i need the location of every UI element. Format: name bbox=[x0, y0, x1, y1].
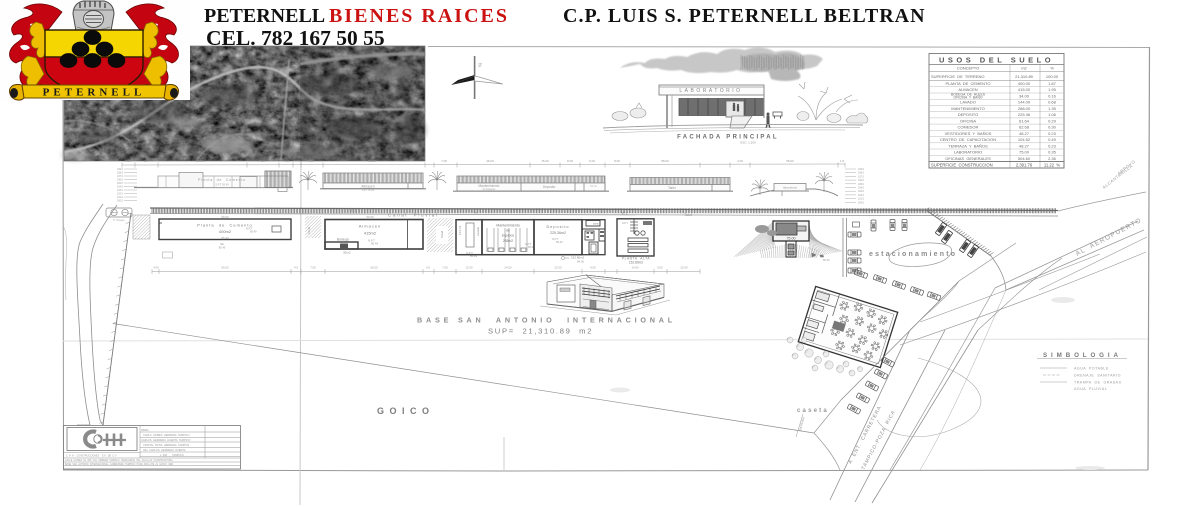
svg-text:102.0: 102.0 bbox=[858, 194, 865, 197]
svg-text:0.23: 0.23 bbox=[1048, 131, 1057, 136]
svg-text:ENTRADA: ENTRADA bbox=[798, 416, 806, 431]
svg-text:C H H CONSTRUCCIONES S: C H H CONSTRUCCIONES S.A. DE C.V. bbox=[66, 455, 117, 458]
svg-text:0.30: 0.30 bbox=[1048, 125, 1057, 130]
svg-text:Deposito: Deposito bbox=[547, 225, 570, 229]
svg-text:Deposito: Deposito bbox=[543, 185, 556, 189]
svg-text:AL AEROPUERTO: AL AEROPUERTO bbox=[1075, 217, 1144, 258]
svg-text:7.00: 7.00 bbox=[442, 266, 448, 270]
svg-text:225.36: 225.36 bbox=[1018, 112, 1031, 117]
svg-text:60.00: 60.00 bbox=[222, 215, 229, 219]
svg-text:%: % bbox=[1050, 66, 1054, 71]
svg-text:415.00: 415.00 bbox=[1018, 87, 1031, 92]
svg-text:C.P. LUIS S. PETERNELL BELTRAN: C.P. LUIS S. PETERNELL BELTRAN bbox=[563, 5, 926, 27]
svg-text:1.8: 1.8 bbox=[144, 159, 149, 163]
svg-text:caseta: caseta bbox=[797, 408, 829, 414]
svg-text:8.00: 8.00 bbox=[259, 159, 265, 163]
svg-text:4.00: 4.00 bbox=[737, 159, 743, 163]
svg-text:101.0: 101.0 bbox=[858, 198, 865, 201]
svg-text:60.00: 60.00 bbox=[371, 266, 378, 270]
svg-text:CEL. 782 167 50 55: CEL. 782 167 50 55 bbox=[206, 26, 385, 50]
svg-text:COMEDOR: COMEDOR bbox=[958, 125, 979, 130]
svg-text:PETERNELL BIENES RAICES: PETERNELL BIENES RAICES bbox=[204, 5, 509, 27]
svg-text:144 m2: 144 m2 bbox=[458, 225, 462, 235]
svg-text:1.35: 1.35 bbox=[1048, 106, 1057, 111]
svg-text:NE: NE bbox=[220, 242, 224, 246]
svg-text:BASE SAN ANTONIO INTERNACIO: BASE SAN ANTONIO INTERNACIONAL CARRETERA… bbox=[65, 463, 174, 466]
svg-text:Talud: Talud bbox=[307, 226, 311, 234]
svg-text:400.00: 400.00 bbox=[1018, 81, 1031, 86]
svg-text:8.00: 8.00 bbox=[125, 159, 131, 163]
svg-text:5.00: 5.00 bbox=[657, 266, 663, 270]
svg-text:4.5: 4.5 bbox=[426, 266, 430, 270]
svg-text:N.P.T.: N.P.T. bbox=[622, 222, 629, 225]
svg-text:8.00: 8.00 bbox=[567, 159, 573, 163]
svg-text:0.49: 0.49 bbox=[1048, 137, 1057, 142]
svg-text:Planta de Cemento: Planta de Cemento bbox=[198, 178, 246, 182]
svg-text:SUPERFICIE CONSTRUCCION: SUPERFICIE CONSTRUCCION bbox=[931, 163, 993, 168]
svg-text:ALCANTARILLA: ALCANTARILLA bbox=[1102, 163, 1134, 190]
svg-text:225.36m2: 225.36m2 bbox=[550, 231, 566, 235]
svg-text:Almacen: Almacen bbox=[359, 224, 382, 229]
svg-text:1.8: 1.8 bbox=[285, 159, 290, 163]
svg-text:de Equipos: de Equipos bbox=[483, 187, 497, 191]
svg-text:1.95: 1.95 bbox=[1048, 87, 1057, 92]
svg-text:PLANTA DE CEMENTO: PLANTA DE CEMENTO bbox=[946, 81, 991, 86]
svg-text:GOICO: GOICO bbox=[377, 406, 435, 416]
svg-text:CRISTAL ROSS HERRERA CAMPOS: CRISTAL ROSS HERRERA CAMPOS bbox=[143, 443, 189, 447]
svg-text:58.00: 58.00 bbox=[196, 159, 204, 163]
svg-text:36.00: 36.00 bbox=[486, 159, 494, 163]
svg-text:ESC 1:200: ESC 1:200 bbox=[740, 141, 756, 145]
svg-text:LAVADO: LAVADO bbox=[960, 100, 976, 105]
svg-text:400m2: 400m2 bbox=[219, 229, 232, 234]
svg-text:4.00: 4.00 bbox=[153, 266, 159, 270]
svg-text:bano: bano bbox=[593, 222, 599, 226]
svg-text:BASE SAN ANTONIO INTERNACION: BASE SAN ANTONIO INTERNACIONAL bbox=[417, 316, 676, 325]
svg-text:CARLA HOMES HERRERA TAMPICO: CARLA HOMES HERRERA TAMPICO bbox=[143, 433, 189, 437]
svg-text:4.5: 4.5 bbox=[294, 266, 298, 270]
svg-text:ALMACEN: ALMACEN bbox=[958, 87, 977, 92]
svg-text:DRENAJE SANITARIO: DRENAJE SANITARIO bbox=[1074, 374, 1121, 378]
svg-text:106.0: 106.0 bbox=[858, 179, 865, 182]
svg-text:20.00: 20.00 bbox=[681, 266, 688, 270]
svg-text:24.00: 24.00 bbox=[505, 266, 512, 270]
svg-text:7.00: 7.00 bbox=[307, 159, 313, 163]
svg-text:Talud: Talud bbox=[349, 209, 357, 213]
svg-text:6.00: 6.00 bbox=[589, 159, 595, 163]
svg-text:L 606 TAMPICO: L 606 TAMPICO bbox=[160, 453, 184, 457]
svg-text:109.0: 109.0 bbox=[858, 168, 865, 171]
svg-text:85.49: 85.49 bbox=[222, 236, 229, 240]
svg-text:Canal Pluvial: Canal Pluvial bbox=[388, 213, 439, 218]
svg-text:TRAMPA DE GRASAS: TRAMPA DE GRASAS bbox=[1074, 381, 1122, 385]
svg-text:1.87: 1.87 bbox=[1048, 81, 1057, 86]
svg-text:7.00: 7.00 bbox=[441, 159, 447, 163]
svg-text:103.0: 103.0 bbox=[858, 190, 865, 193]
svg-text:100.0: 100.0 bbox=[858, 201, 865, 204]
svg-text:OBRA:: OBRA: bbox=[141, 428, 149, 432]
svg-text:152.80m2: 152.80m2 bbox=[629, 261, 643, 265]
svg-text:100.00: 100.00 bbox=[1046, 74, 1059, 79]
svg-text:0.16: 0.16 bbox=[1048, 94, 1057, 99]
svg-text:62.68: 62.68 bbox=[1019, 125, 1030, 130]
svg-text:MANTENIMIENTO: MANTENIMIENTO bbox=[951, 106, 984, 111]
svg-text:LABORATORIO: LABORATORIO bbox=[954, 150, 983, 155]
svg-text:ING CARLOS HERRERA HUERTA: ING CARLOS HERRERA HUERTA bbox=[143, 448, 186, 452]
svg-text:TERRAZA Y BAÑOS: TERRAZA Y BAÑOS bbox=[948, 143, 988, 148]
svg-text:Bodega: Bodega bbox=[337, 238, 349, 242]
svg-text:PETERNELL: PETERNELL bbox=[43, 87, 146, 99]
svg-text:USOS DEL SUELO: USOS DEL SUELO bbox=[939, 56, 1054, 65]
svg-text:TAMPICO-POZA RICA: TAMPICO-POZA RICA bbox=[860, 409, 897, 471]
svg-text:O. C.: O. C. bbox=[590, 184, 597, 188]
svg-text:22.00: 22.00 bbox=[555, 266, 562, 270]
svg-text:415m2: 415m2 bbox=[364, 231, 377, 236]
svg-text:CONCEPTO: CONCEPTO bbox=[957, 66, 980, 71]
svg-text:estacionamiento: estacionamiento bbox=[869, 251, 957, 258]
svg-text:Lavado: Lavado bbox=[476, 226, 480, 236]
svg-text:Talud: Talud bbox=[684, 213, 692, 217]
svg-text:Equipos: Equipos bbox=[502, 234, 515, 238]
svg-text:T.A.: T.A. bbox=[472, 211, 478, 215]
svg-text:1.06: 1.06 bbox=[1048, 112, 1057, 117]
svg-text:21,310.89: 21,310.89 bbox=[1015, 74, 1034, 79]
svg-text:S.P.T 85.49: S.P.T 85.49 bbox=[362, 189, 375, 192]
svg-text:8.00: 8.00 bbox=[614, 159, 620, 163]
svg-text:11.22 %: 11.22 % bbox=[1044, 163, 1060, 168]
svg-text:DEPOSITO: DEPOSITO bbox=[958, 112, 979, 117]
svg-text:12.00: 12.00 bbox=[466, 266, 473, 270]
svg-text:CENTRO DE CAPACITACION: CENTRO DE CAPACITACION bbox=[940, 137, 996, 142]
svg-text:AGUA PLUVIAL: AGUA PLUVIAL bbox=[1074, 387, 1107, 391]
svg-text:NE: NE bbox=[820, 254, 824, 258]
svg-text:75.00: 75.00 bbox=[787, 237, 796, 241]
svg-text:288m2: 288m2 bbox=[503, 239, 513, 243]
svg-text:1.8: 1.8 bbox=[840, 159, 845, 163]
svg-text:OFICINA: OFICINA bbox=[960, 118, 977, 123]
svg-text:Talud: Talud bbox=[440, 230, 444, 238]
svg-text:100.0: 100.0 bbox=[117, 200, 124, 203]
svg-text:Planta de Cemento: Planta de Cemento bbox=[197, 223, 252, 228]
svg-text:P. Tanque: P. Tanque bbox=[113, 218, 125, 222]
svg-text:0.29: 0.29 bbox=[1048, 118, 1057, 123]
svg-text:2.36: 2.36 bbox=[1048, 156, 1057, 161]
svg-text:0.23: 0.23 bbox=[1048, 143, 1057, 148]
svg-text:58.00: 58.00 bbox=[368, 159, 376, 163]
svg-text:SIMBOLOGIA: SIMBOLOGIA bbox=[1043, 352, 1122, 359]
svg-text:0.35: 0.35 bbox=[1048, 150, 1057, 155]
svg-text:FACHADA PRINCIPAL: FACHADA PRINCIPAL bbox=[677, 135, 779, 141]
svg-text:30m2: 30m2 bbox=[343, 251, 351, 255]
svg-text:85.49: 85.49 bbox=[823, 258, 830, 262]
svg-text:58.00: 58.00 bbox=[786, 159, 794, 163]
svg-text:60.00: 60.00 bbox=[367, 215, 374, 219]
svg-text:104.52: 104.52 bbox=[1018, 137, 1031, 142]
svg-text:Mantenimiento: Mantenimiento bbox=[496, 224, 520, 228]
svg-text:288.00: 288.00 bbox=[1018, 106, 1031, 111]
svg-text:AGUA POTABLE: AGUA POTABLE bbox=[1074, 367, 1109, 371]
svg-text:85.49: 85.49 bbox=[556, 240, 563, 244]
svg-text:LABORATORIO: LABORATORIO bbox=[679, 88, 742, 94]
svg-text:7.00: 7.00 bbox=[310, 266, 316, 270]
svg-text:14.00: 14.00 bbox=[632, 266, 639, 270]
svg-text:144.00: 144.00 bbox=[1018, 100, 1031, 105]
svg-text:CALLE GOMEZ No 606 COL OB: CALLE GOMEZ No 606 COL OBRERA TAMPICO TA… bbox=[65, 459, 173, 462]
svg-text:LAB: LAB bbox=[800, 223, 805, 226]
svg-text:SUPERFICIE DE TERRENO: SUPERFICIE DE TERRENO bbox=[931, 74, 985, 79]
svg-text:107.0: 107.0 bbox=[858, 175, 865, 178]
svg-text:VESTIDORES Y BAÑOS: VESTIDORES Y BAÑOS bbox=[945, 131, 992, 136]
svg-text:2,391.76: 2,391.76 bbox=[1016, 163, 1033, 168]
svg-text:84.00: 84.00 bbox=[577, 260, 584, 264]
svg-text:S.P.T 85.49: S.P.T 85.49 bbox=[215, 183, 229, 187]
svg-text:85.49: 85.49 bbox=[371, 242, 378, 246]
svg-text:58.00: 58.00 bbox=[661, 159, 669, 163]
svg-text:P.T.: P.T. bbox=[622, 212, 628, 216]
svg-text:108.0: 108.0 bbox=[858, 172, 865, 175]
svg-text:48.27: 48.27 bbox=[1019, 143, 1030, 148]
svg-text:48.27: 48.27 bbox=[1019, 131, 1030, 136]
svg-text:SUP= 21,310.89 m2: SUP= 21,310.89 m2 bbox=[488, 327, 593, 336]
svg-text:Taller: Taller bbox=[668, 186, 677, 190]
svg-text:85.49: 85.49 bbox=[219, 246, 226, 250]
svg-text:85.49: 85.49 bbox=[250, 230, 257, 234]
svg-text:504.60: 504.60 bbox=[1018, 156, 1031, 161]
svg-text:34.00: 34.00 bbox=[1019, 94, 1030, 99]
svg-text:75.00: 75.00 bbox=[1019, 150, 1030, 155]
svg-text:de: de bbox=[506, 229, 510, 233]
svg-text:104.0: 104.0 bbox=[858, 187, 865, 190]
svg-text:9.00: 9.00 bbox=[590, 266, 596, 270]
svg-text:m2: m2 bbox=[1021, 66, 1027, 71]
svg-text:15.00: 15.00 bbox=[541, 159, 549, 163]
svg-text:CARLOS HERRERA HUERTA TAMPI: CARLOS HERRERA HUERTA TAMPICO bbox=[141, 438, 190, 442]
svg-text:laboratorio: laboratorio bbox=[783, 186, 798, 190]
svg-text:61.64: 61.64 bbox=[1019, 118, 1030, 123]
svg-text:60.00: 60.00 bbox=[222, 266, 229, 270]
svg-text:OFICINAS GENERALES: OFICINAS GENERALES bbox=[945, 156, 991, 161]
svg-text:0.68: 0.68 bbox=[1048, 100, 1057, 105]
svg-text:N: N bbox=[476, 63, 483, 68]
svg-text:105.0: 105.0 bbox=[858, 183, 865, 186]
